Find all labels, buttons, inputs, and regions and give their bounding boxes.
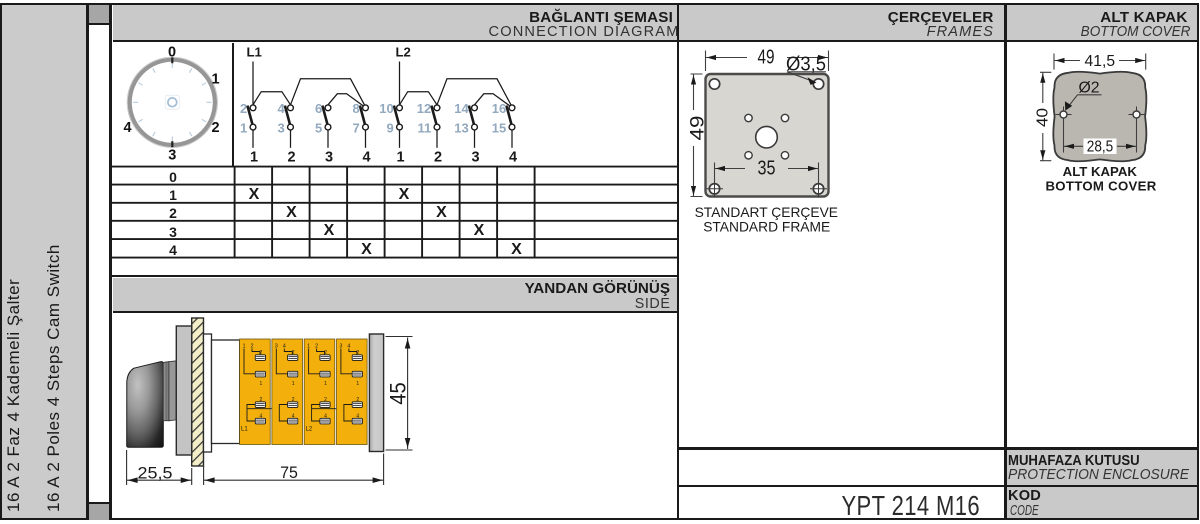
- svg-text:2: 2: [292, 397, 295, 403]
- svg-text:1: 1: [260, 381, 263, 387]
- svg-text:2: 2: [260, 397, 263, 403]
- svg-text:4: 4: [260, 413, 263, 419]
- svg-text:4: 4: [292, 413, 295, 419]
- svg-text:L2: L2: [306, 427, 313, 433]
- svg-text:1: 1: [292, 381, 295, 387]
- svg-text:2: 2: [356, 397, 359, 403]
- svg-text:2: 2: [324, 397, 327, 403]
- svg-text:L1: L1: [241, 427, 248, 433]
- svg-text:4: 4: [356, 413, 359, 419]
- svg-text:1: 1: [356, 381, 359, 387]
- svg-text:4: 4: [324, 413, 327, 419]
- svg-text:45: 45: [386, 382, 411, 405]
- svg-text:75: 75: [280, 464, 298, 482]
- svg-text:25,5: 25,5: [138, 465, 173, 483]
- svg-text:1: 1: [324, 381, 327, 387]
